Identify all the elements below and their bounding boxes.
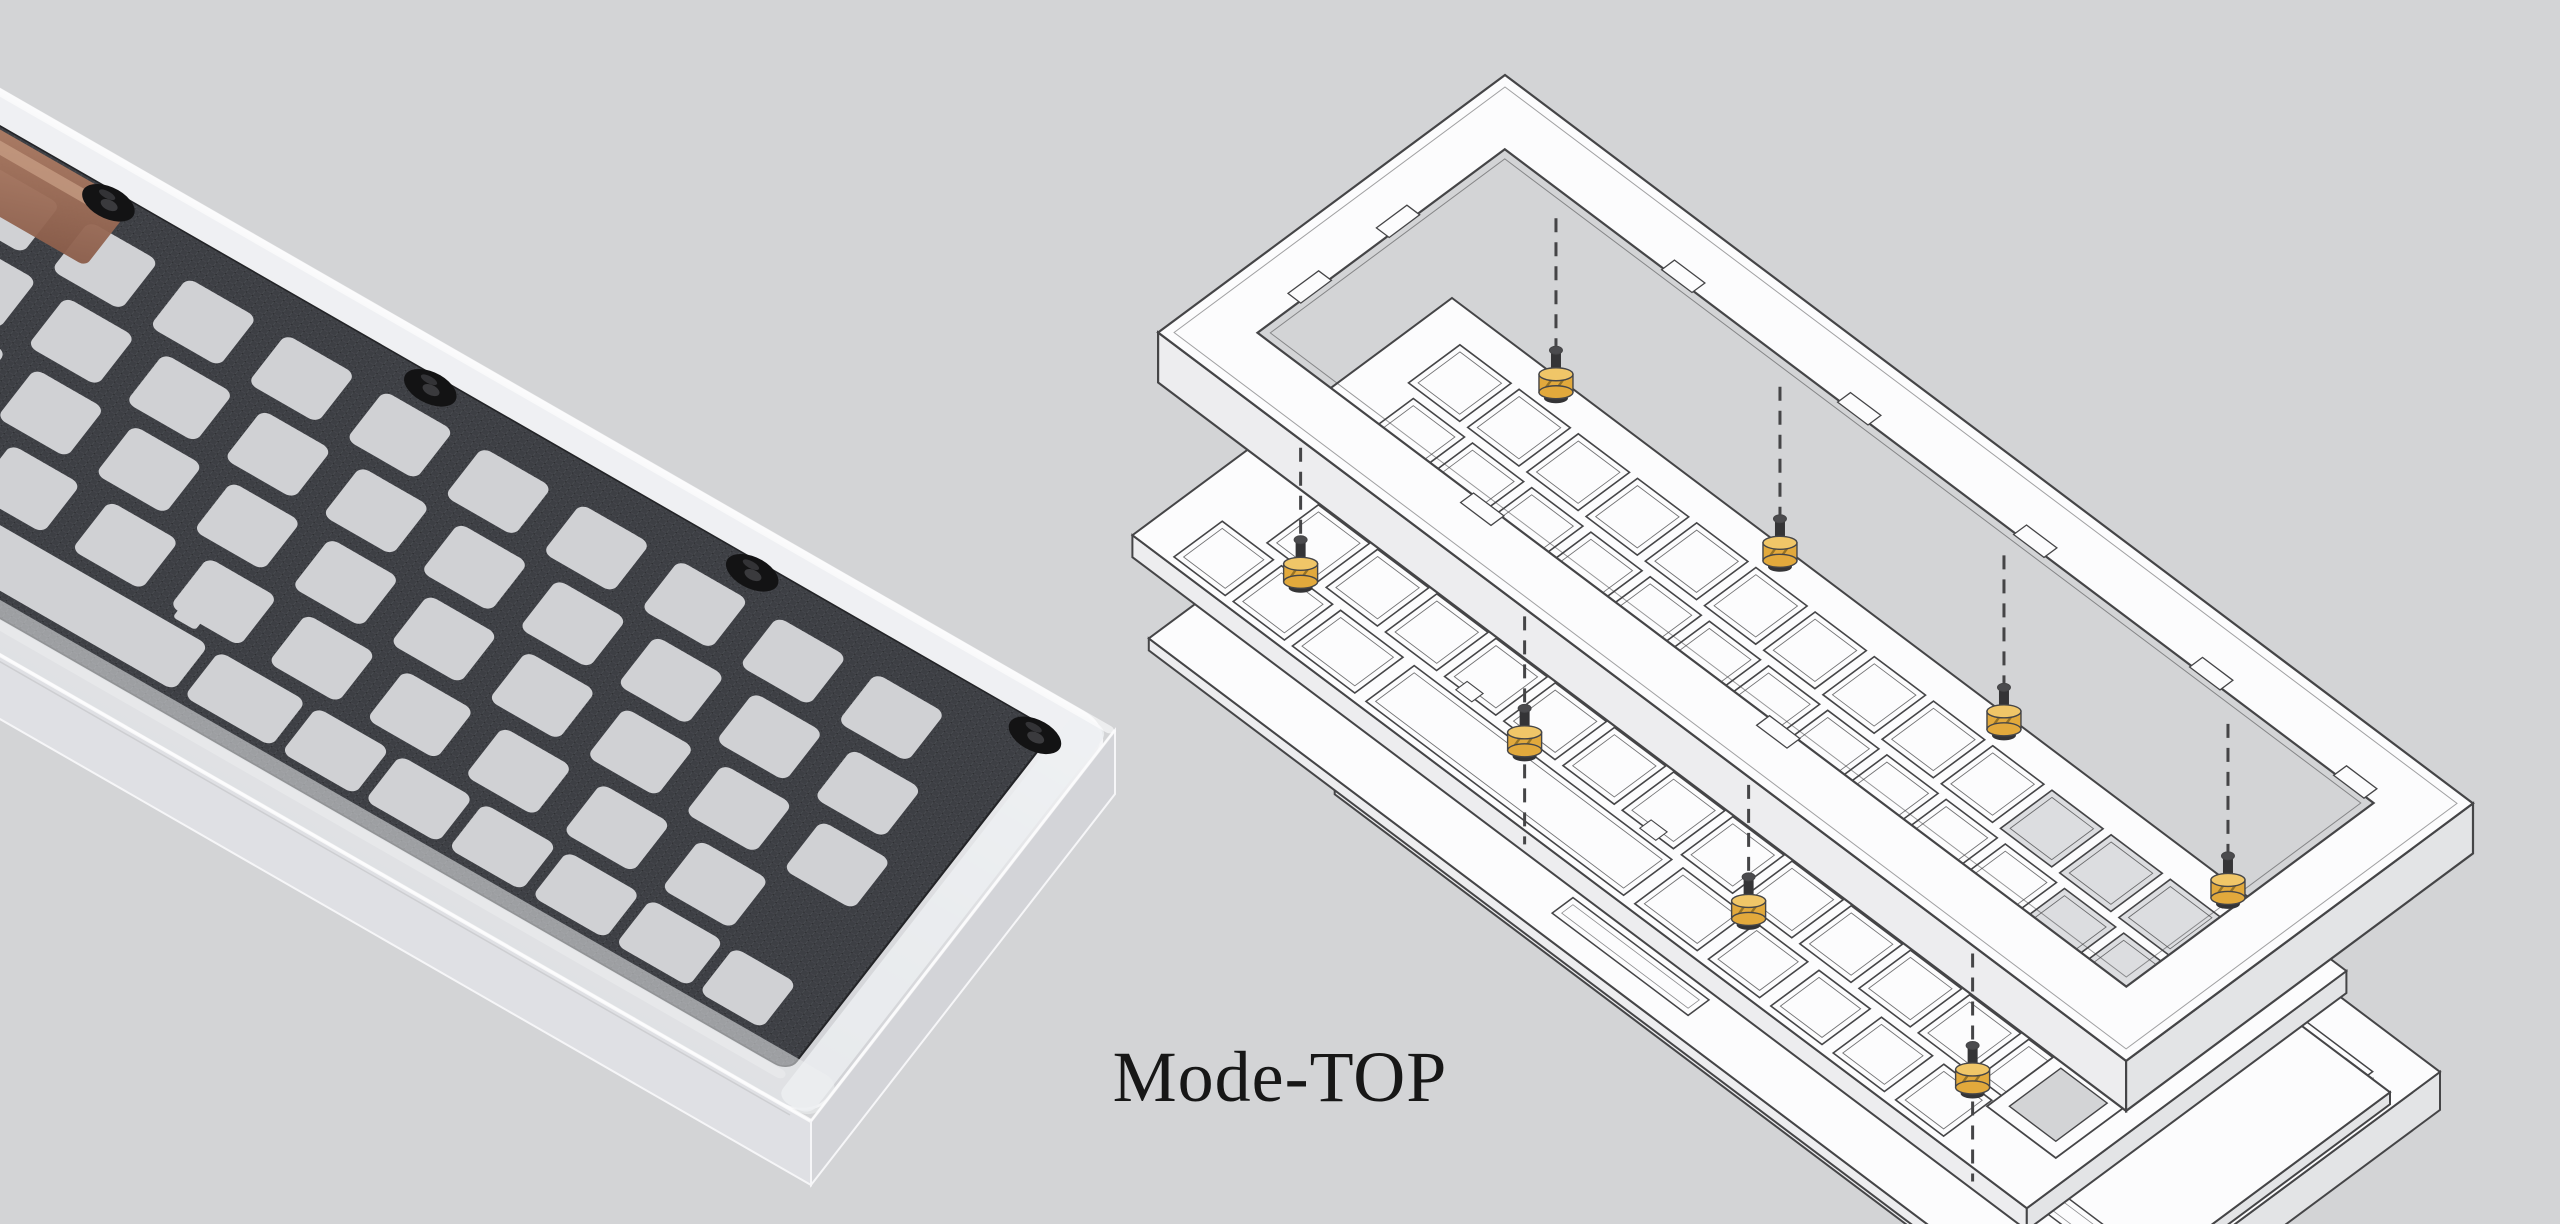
caption-text: Mode-TOP	[1113, 1037, 1448, 1117]
caption: Mode-TOP	[0, 1040, 2560, 1116]
left-keyboard-render	[0, 0, 1116, 1185]
